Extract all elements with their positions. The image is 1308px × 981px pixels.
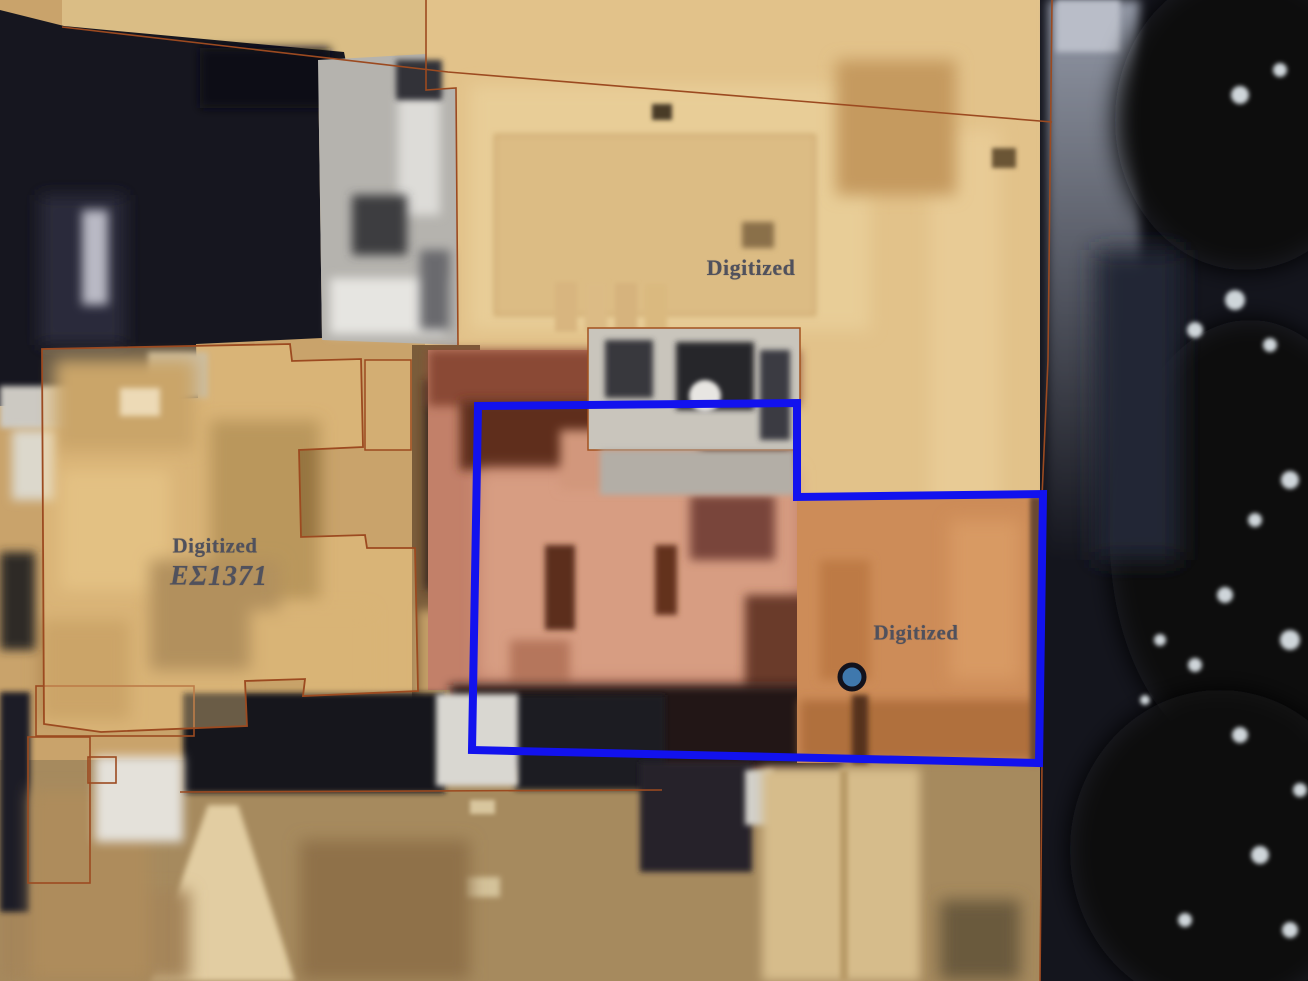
parcel-left-annex[interactable] <box>365 360 411 450</box>
parcel-label-top: Digitized <box>707 255 796 281</box>
parcel-label-right: Digitized <box>874 621 959 646</box>
orthophoto-view <box>0 0 1308 981</box>
parcel-label-left: Digitized <box>173 534 258 559</box>
point-marker[interactable] <box>840 665 864 689</box>
parcel-id-left: ΕΣ1371 <box>170 561 268 593</box>
map-canvas[interactable]: Digitized Digitized ΕΣ1371 Digitized <box>0 0 1308 981</box>
